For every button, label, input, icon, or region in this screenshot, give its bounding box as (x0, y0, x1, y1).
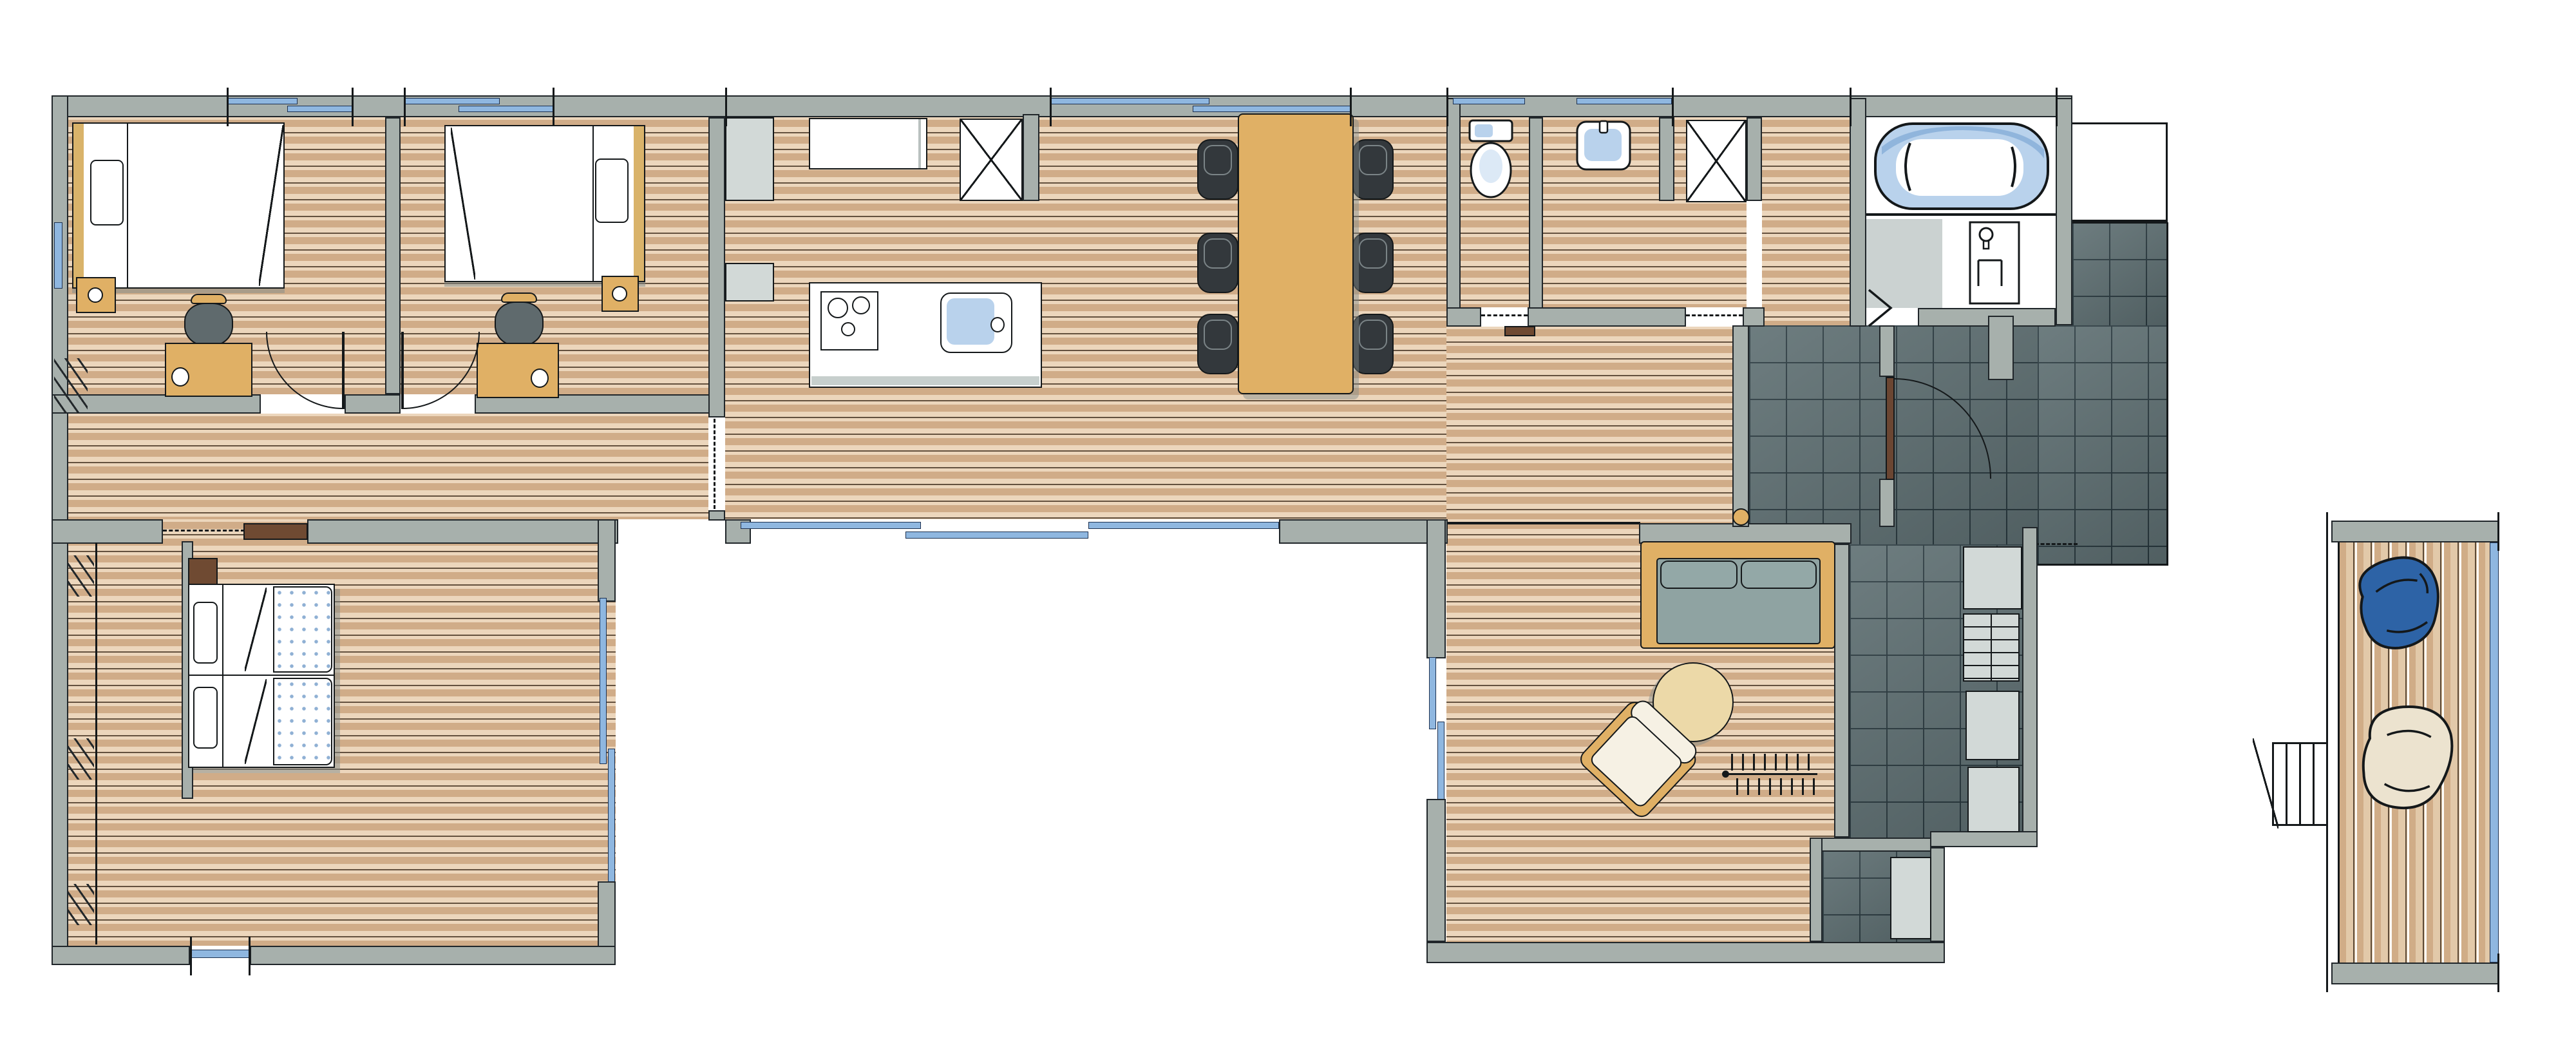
toilet-north-window (1453, 98, 1525, 104)
bedroom2-door-arc (402, 332, 480, 409)
dim-tick-11 (2056, 88, 2058, 126)
dim-tick-16 (2326, 953, 2328, 992)
dining-table (1238, 113, 1354, 394)
ldk-beam-line (1448, 522, 1640, 524)
dining-north-window-1 (1050, 98, 1209, 104)
nook-top-wall (1810, 838, 1940, 852)
toilet-slider-panel (1504, 326, 1535, 336)
bedroom1-north-window-2 (287, 106, 353, 112)
kitchen-island-edge (811, 376, 1039, 385)
powder-east-wall (1659, 117, 1674, 201)
suite-west-wall (1850, 98, 1866, 327)
bedroom1-sheet-line (127, 124, 128, 287)
toilet-powder-wall (1529, 117, 1543, 325)
master-north-wall-a (52, 519, 163, 544)
round-post (1732, 508, 1750, 526)
leftwing-south-wall-a (52, 946, 190, 965)
living-room-floor-south (1446, 838, 1810, 942)
corridor-closet-2 (1965, 691, 2020, 760)
courtyard-north-wall-b (1279, 519, 1448, 544)
dim-tick-10 (1850, 88, 1851, 126)
nook-east-wall (1930, 847, 1945, 942)
dim-tick-3 (404, 88, 406, 126)
dim-tick-9 (1672, 88, 1674, 126)
dining-chair-6 (1352, 314, 1394, 374)
corridor-closet-3 (1967, 767, 2020, 832)
bedroom2-pillow (595, 158, 629, 223)
bean-bag-blue (2340, 543, 2456, 669)
deck-west-inner-line (2338, 542, 2340, 963)
leftwing-east-glass-1 (600, 598, 607, 764)
courtyard-sliding-glass-3 (1088, 522, 1279, 529)
toilet (1467, 119, 1516, 200)
master-sliding-door-track (163, 530, 245, 532)
deck-steps (2272, 742, 2327, 826)
dim-tick-5 (725, 88, 727, 126)
approach-top-edge (2072, 222, 2168, 224)
bath-laundry-divider (1866, 213, 2056, 216)
nook-closet (1890, 857, 1931, 939)
leftwing-south-wall-b (250, 946, 616, 965)
sofa-back-cushion-2 (1741, 561, 1817, 589)
bedroom2-ldk-wall-lower (708, 510, 725, 521)
dim-tick-15 (2497, 512, 2499, 551)
sofa-back-cushion-1 (1660, 561, 1738, 589)
master-nightstand (188, 558, 218, 585)
master-north-wall-b (307, 519, 618, 544)
master-bed-head-line (222, 585, 223, 767)
bathtub (1873, 121, 2050, 211)
bedroom1-chair (184, 303, 233, 347)
master-bed-split-line (189, 675, 334, 676)
washing-machine (1968, 220, 2021, 305)
stove-burner-2 (852, 296, 870, 314)
hallway-floor (68, 414, 708, 519)
dim-tick-1 (227, 88, 229, 126)
block-south-wall-a (1446, 307, 1481, 327)
bedroom1-pillow (90, 160, 124, 225)
stove-burner-3 (841, 322, 855, 336)
bath-hall-floor (1762, 117, 1850, 325)
linen-closet-east-wall (1747, 117, 1762, 201)
bedroom1-door-arc (266, 332, 343, 409)
dining-north-window-2 (1193, 106, 1351, 112)
refrigerator-bay (960, 119, 1023, 201)
master-duvet-2 (273, 678, 332, 765)
genkan-ne-stub-wall (1988, 316, 2014, 380)
bedroom1-north-window-1 (227, 98, 298, 104)
laundry-bifold-door (1866, 289, 1895, 329)
leftwing-east-wall-a (598, 519, 616, 602)
living-west-glass-2 (1437, 722, 1444, 801)
master-blanket-fold-2 (245, 679, 267, 764)
nook-west-wall (1810, 838, 1823, 942)
dining-chair-3 (1197, 314, 1238, 374)
floor-hatch-ticks-top (1731, 754, 1816, 771)
bedroom1-door-leaf (342, 332, 345, 409)
suite-south-wall (1918, 308, 2056, 327)
kitchen-faucet (990, 317, 1005, 332)
genkan-west-wall (1732, 325, 1749, 527)
master-pillow-2 (193, 687, 218, 749)
powder-door-dashed (1686, 314, 1743, 316)
approach-bottom-edge (2038, 564, 2168, 566)
corridor-closet-1 (1963, 546, 2022, 609)
bedroom2-blanket-fold (451, 128, 475, 280)
bedroom2-north-window-1 (404, 98, 500, 104)
block-south-wall-c (1743, 307, 1765, 327)
bedroom1-desk-lamp (171, 367, 189, 387)
living-west-wall-a (1426, 519, 1446, 658)
linen-closet (1686, 120, 1747, 202)
floor-plan-canvas (0, 0, 2576, 1054)
entry-door-wall-south (1879, 479, 1895, 527)
kitchen-counter-divider (918, 119, 921, 168)
bedroom2-lamp (612, 286, 627, 302)
deck-east-railing (2490, 542, 2499, 963)
bedroom1-chair-back (191, 294, 227, 304)
suite-east-wall (2056, 98, 2072, 325)
floor-hatch-ticks-bottom (1736, 778, 1816, 795)
living-west-glass-1 (1429, 657, 1436, 729)
dim-tick-2 (352, 88, 354, 126)
toilet-door-dashed (1481, 314, 1528, 316)
master-blanket-fold-1 (245, 588, 267, 671)
leftwing-east-glass-2 (608, 749, 615, 885)
wic-hanging-rod (95, 542, 97, 944)
outdoor-approach-tile-2 (2038, 325, 2168, 566)
master-sliding-door-panel (243, 523, 308, 540)
entry-porch (2072, 122, 2168, 222)
approach-east-edge (2166, 222, 2168, 566)
stove (820, 291, 878, 350)
hall-ldk-sliding-door (714, 419, 715, 509)
deck-steps-break-mark (2253, 738, 2278, 829)
bedroom1-west-window (54, 222, 62, 289)
bedroom-south-wall-b (345, 394, 401, 414)
dining-chair-5 (1352, 233, 1394, 293)
wall-closet-upper (725, 117, 774, 201)
deck-south-wall (2331, 963, 2499, 984)
wing-east-wall (2022, 527, 2038, 841)
dim-tick-12 (190, 937, 192, 975)
corridor-shelf-unit (1963, 613, 2020, 682)
dim-tick-17 (2497, 953, 2499, 992)
wic-hanger-marks-1 (67, 555, 94, 597)
master-bedroom-floor (68, 519, 616, 946)
bedroom-partition-wall (385, 117, 401, 394)
dim-tick-6 (1050, 88, 1052, 126)
deck-north-wall (2331, 521, 2499, 542)
master-south-window (190, 950, 250, 958)
dim-tick-13 (249, 937, 251, 975)
fridge-side-wall (1023, 114, 1039, 201)
courtyard-sliding-glass-1 (741, 522, 921, 529)
dining-chair-4 (1352, 139, 1394, 200)
dining-chair-2 (1197, 233, 1238, 293)
block-south-wall-b (1528, 307, 1686, 327)
floor-hatch (1731, 752, 1816, 798)
hall-hanger-marks (54, 358, 88, 412)
bedroom2-desk-lamp (531, 369, 549, 388)
bedroom1-blanket-fold (259, 125, 283, 286)
outdoor-approach-tile (2072, 222, 2168, 325)
kitchen-sink-basin (947, 298, 994, 345)
powder-north-window (1577, 98, 1672, 104)
dim-tick-4 (553, 88, 554, 126)
entry-door-leaf (1886, 377, 1895, 480)
kitchen-back-counter (809, 118, 927, 169)
wing-south-wall (1426, 942, 1945, 963)
step-cap-wall (1930, 831, 2038, 847)
bedroom2-ldk-wall-upper (708, 117, 725, 417)
master-pillow-1 (193, 602, 218, 664)
wic-hanger-marks-2 (67, 738, 94, 780)
floor-hatch-midline (1727, 773, 1817, 775)
floor-hatch-knob (1722, 771, 1729, 778)
dim-tick-8 (1446, 88, 1448, 126)
stove-burner-1 (828, 298, 848, 318)
dim-tick-14 (2326, 512, 2328, 551)
dining-chair-1 (1197, 139, 1238, 200)
bedroom2-north-window-2 (459, 106, 554, 112)
bedroom2-headboard (634, 126, 644, 281)
wall-closet-lower (725, 263, 774, 302)
bedroom2-desk (477, 343, 559, 398)
living-tile-wall (1834, 544, 1850, 838)
genkan-step-dashed-line (2035, 543, 2078, 545)
bedroom2-sheet-line (592, 126, 594, 281)
living-west-wall-b (1426, 799, 1446, 942)
washbasin (1575, 120, 1632, 171)
bedroom2-door-leaf (401, 332, 404, 409)
entry-hall-wood-floor (1446, 327, 1732, 527)
dim-tick-7 (1350, 88, 1352, 126)
bedroom1-headboard (73, 124, 84, 287)
bedroom2-chair-back (501, 292, 537, 303)
bean-bag-cream (2344, 692, 2465, 838)
bedroom2-chair (495, 302, 544, 347)
wic-hanger-marks-3 (67, 884, 94, 925)
master-duvet-1 (273, 586, 332, 673)
entry-door-wall-north (1879, 325, 1895, 377)
courtyard-sliding-glass-2 (905, 532, 1088, 539)
bedroom1-lamp (88, 287, 103, 303)
toilet-west-wall (1446, 98, 1461, 325)
